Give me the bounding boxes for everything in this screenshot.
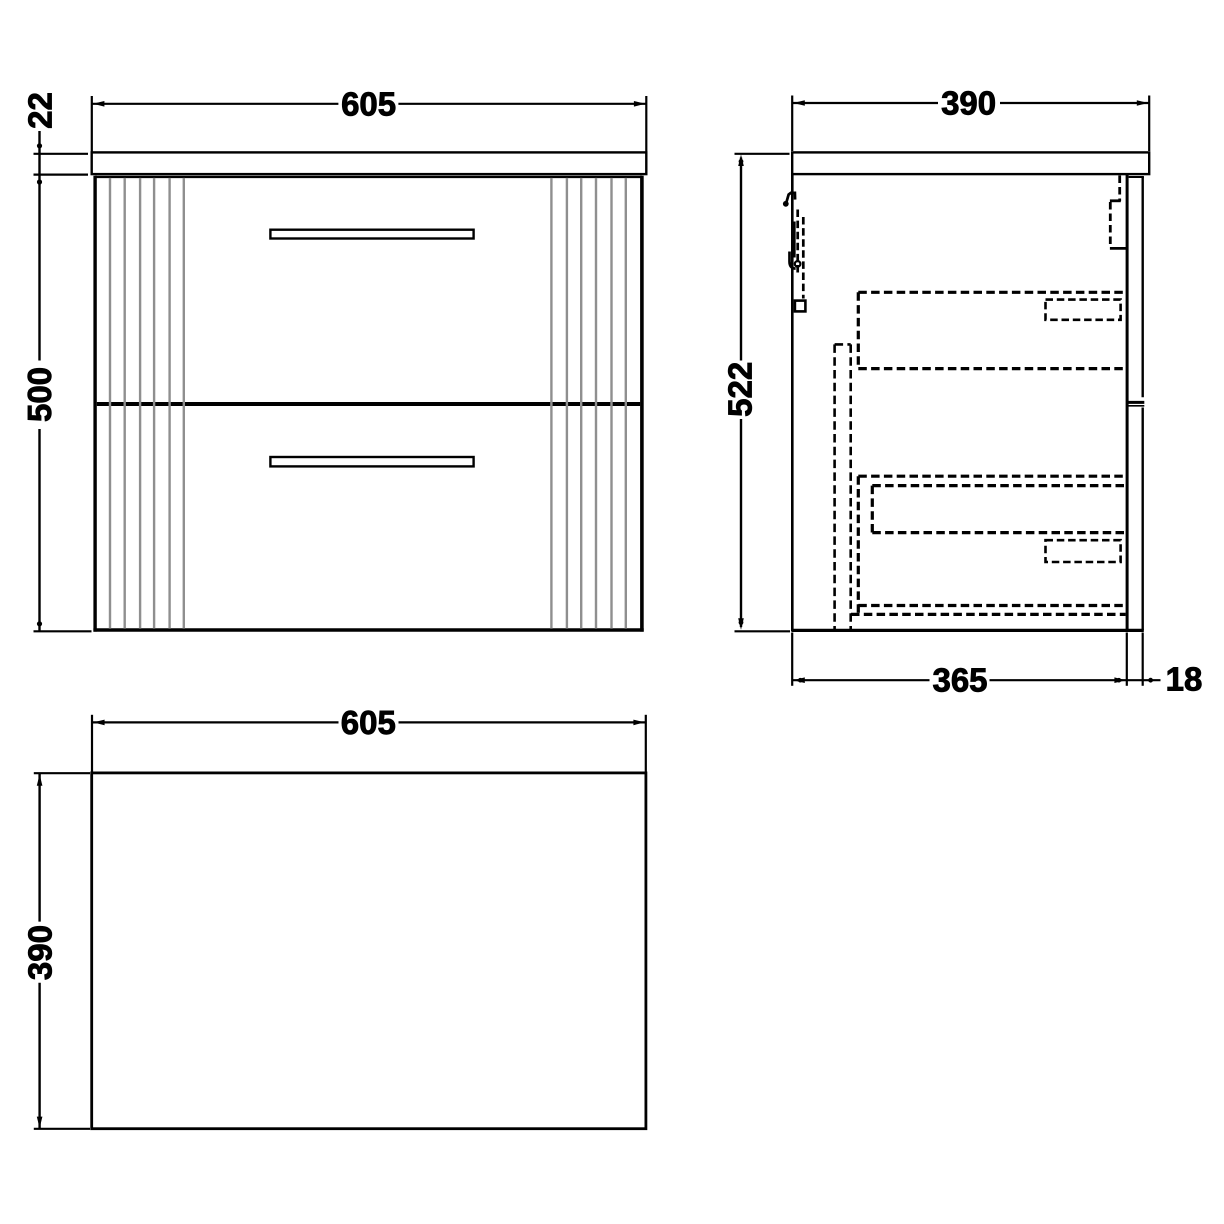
svg-text:605: 605 (341, 704, 396, 741)
svg-text:22: 22 (22, 92, 59, 129)
svg-text:522: 522 (721, 362, 758, 417)
svg-text:365: 365 (932, 662, 987, 699)
svg-text:500: 500 (21, 367, 58, 422)
svg-text:390: 390 (22, 925, 59, 980)
svg-text:18: 18 (1166, 661, 1203, 698)
svg-text:605: 605 (341, 85, 396, 122)
svg-text:390: 390 (941, 85, 996, 122)
